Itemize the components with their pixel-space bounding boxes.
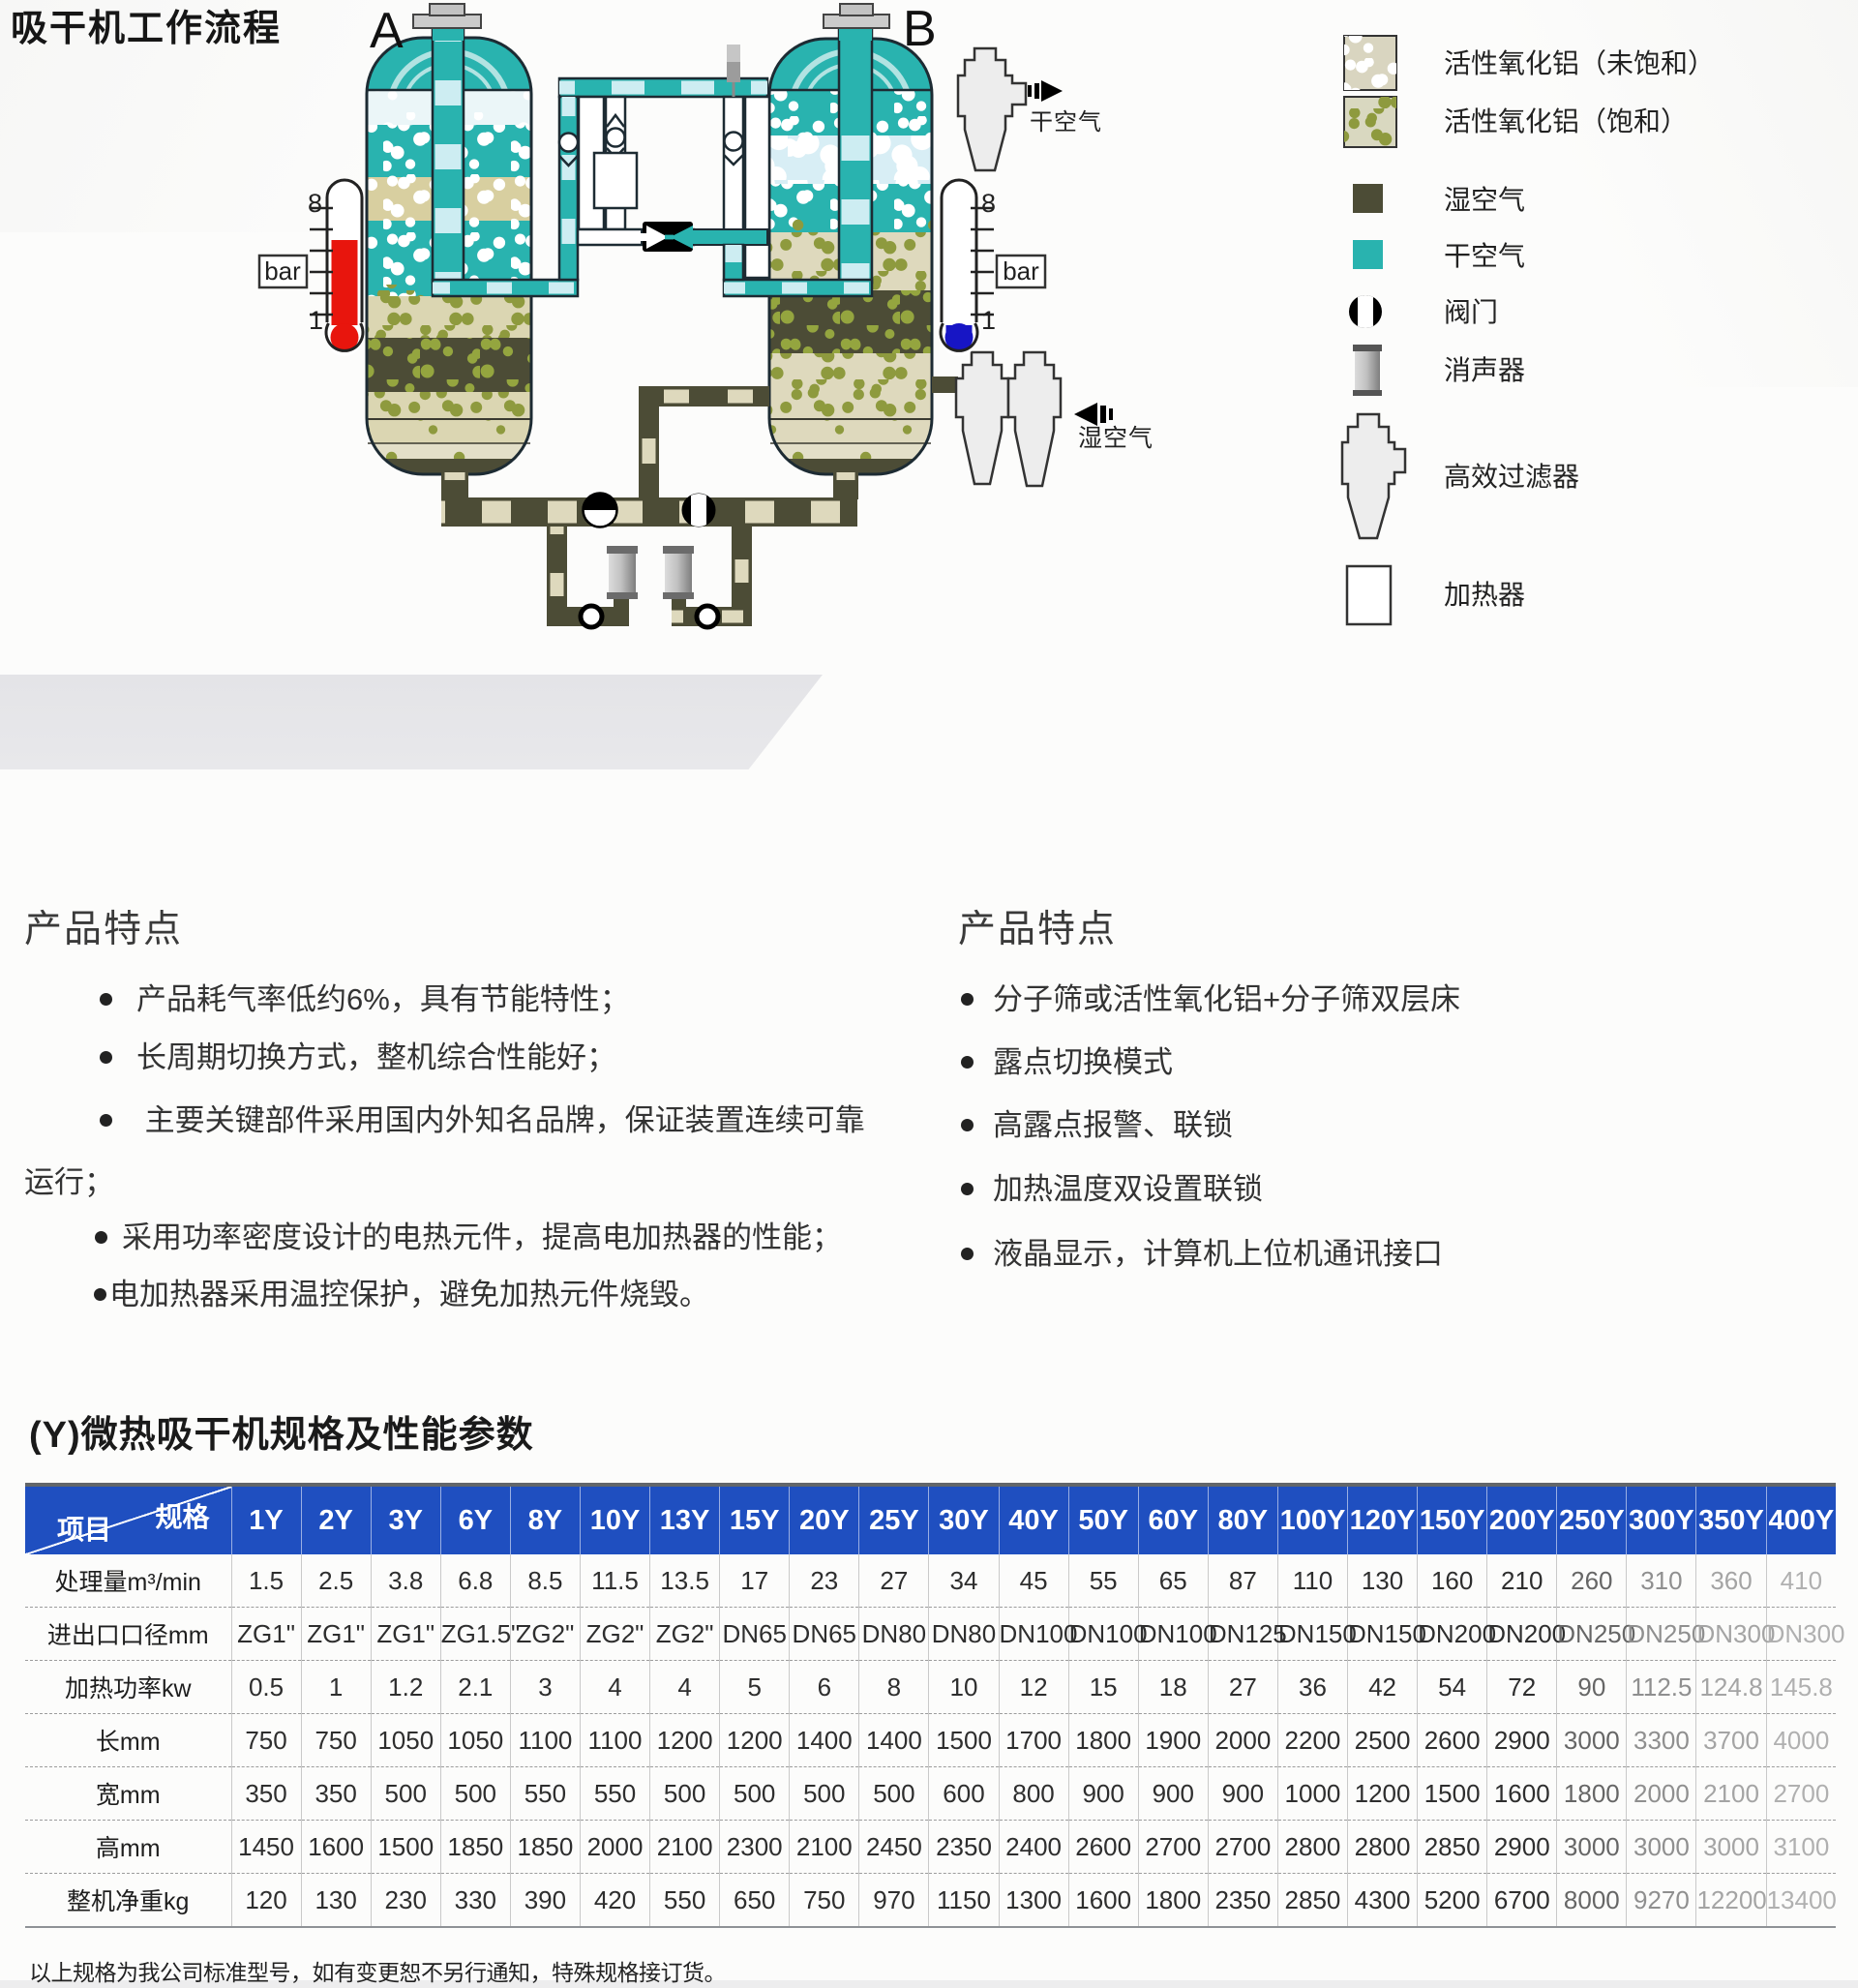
svg-text:湿空气: 湿空气 xyxy=(1078,425,1154,452)
svg-text:活性氧化铝（未饱和）: 活性氧化铝（未饱和） xyxy=(1444,48,1715,78)
svg-text:加热器: 加热器 xyxy=(1444,580,1525,610)
svg-text:B: B xyxy=(903,1,937,57)
svg-text:8: 8 xyxy=(308,189,322,218)
svg-text:1: 1 xyxy=(981,306,996,335)
svg-text:吸干机工作流程: 吸干机工作流程 xyxy=(11,9,282,49)
svg-text:干空气: 干空气 xyxy=(1444,241,1525,271)
svg-text:活性氧化铝（饱和）: 活性氧化铝（饱和） xyxy=(1444,106,1688,136)
svg-text:8: 8 xyxy=(981,189,996,218)
svg-text:bar: bar xyxy=(1003,256,1039,286)
svg-text:高效过滤器: 高效过滤器 xyxy=(1444,462,1579,492)
svg-text:1: 1 xyxy=(309,306,323,335)
svg-text:消声器: 消声器 xyxy=(1444,355,1525,385)
svg-text:湿空气: 湿空气 xyxy=(1444,185,1525,215)
svg-text:bar: bar xyxy=(264,256,301,286)
svg-text:A: A xyxy=(370,3,404,59)
svg-text:阀门: 阀门 xyxy=(1444,297,1498,327)
svg-text:干空气: 干空气 xyxy=(1030,109,1102,136)
